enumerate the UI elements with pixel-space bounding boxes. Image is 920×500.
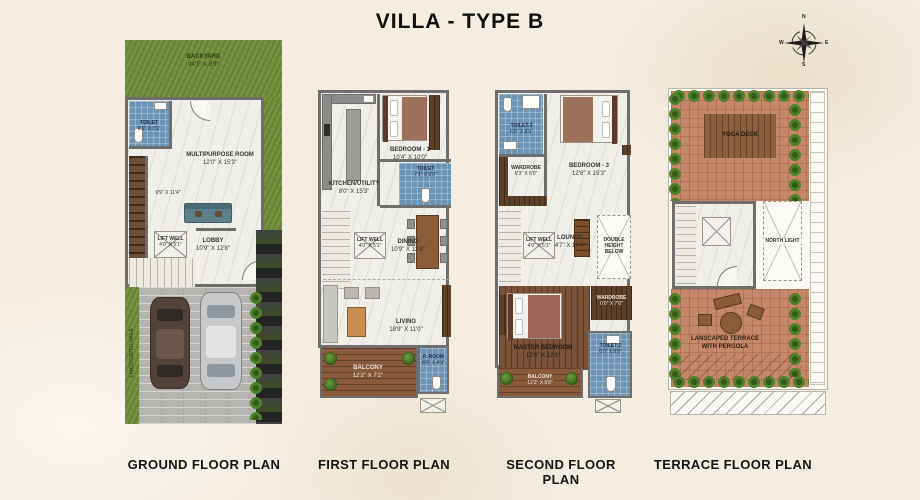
- shower-icon: [522, 95, 540, 109]
- second-building: TOILET-3 6'0" X 8'9" WARDROBE 6'3" X 6'0…: [495, 90, 630, 368]
- room-label-proom: P. ROOM 8'0" X 4'9": [418, 354, 449, 366]
- bed-pillow: [390, 121, 398, 137]
- room-dim: 10'9" X 12'4": [387, 247, 429, 255]
- car-rear-glass: [157, 365, 184, 378]
- room-label-toilet3: TOILET-3 6'0" X 8'9": [500, 123, 543, 135]
- room-dim: 7'1" X 5'0": [401, 172, 450, 178]
- zone-divider: [323, 279, 450, 280]
- room-label-balcony-first: BALCONY 12'2" X 7'2": [328, 365, 408, 380]
- bed-pillow: [602, 101, 610, 117]
- sofa-icon: [184, 203, 232, 223]
- room-name: LANDSCAPED AREA: [129, 318, 135, 388]
- room-name: DINING: [387, 239, 429, 247]
- bed-pillow: [602, 122, 610, 138]
- partition-wall: [380, 205, 451, 208]
- bed-blanket: [528, 295, 560, 338]
- villa-floorplan-sheet: VILLA - TYPE B N E S W BACKYARD 24'3" X …: [0, 0, 920, 500]
- room-name: LIVING: [378, 319, 434, 327]
- room-label-lift-first: LIFT WELL 4'0" X 5'1": [354, 237, 386, 249]
- floor-mat: [595, 399, 621, 413]
- wardrobe-strip: [429, 95, 440, 150]
- bed-headboard: [612, 96, 617, 144]
- plan-ground-floor: BACKYARD 24'3" X 8'9" TOILET 6'5" X 7'1"…: [125, 40, 282, 430]
- toilet-icon: [503, 97, 512, 112]
- room-label-bedroom1: BEDROOM - 1 10'4" X 10'0": [381, 147, 439, 162]
- terrace-stair-block: [672, 201, 756, 289]
- compass-east-label: E: [825, 40, 828, 46]
- car-windshield: [207, 305, 235, 318]
- first-building: KITCHEN/UTILITY 8'0" X 15'3" BEDROOM - 1…: [318, 90, 449, 348]
- room-dim: 6'3" X 6'0": [506, 171, 546, 177]
- room-dim: 6'5" X 7'1": [129, 126, 169, 132]
- room-dim: 4'7" X 12'4": [550, 243, 590, 251]
- room-label-multipurpose: MULTIPURPOSE ROOM 12'0" X 15'3": [176, 152, 264, 167]
- room-label-toilet2: TOILET-2 6'0" X 8'9": [590, 343, 631, 355]
- partition-wall: [196, 228, 236, 231]
- chair-icon: [440, 236, 448, 246]
- car-rear-glass: [207, 364, 235, 377]
- shrub-row-icon: [789, 102, 802, 201]
- bed-blanket: [402, 97, 427, 140]
- shrub-row-icon: [669, 91, 682, 201]
- room-label-northlight: NORTH LIGHT: [763, 238, 802, 244]
- bed-pillow: [515, 319, 523, 335]
- sofa-icon: [323, 285, 338, 343]
- bed-icon: [560, 95, 618, 143]
- room-dim: 4'0" X 5'1": [354, 243, 386, 249]
- room-name: BACKYARD: [125, 54, 282, 62]
- nightstand-icon: [622, 145, 631, 155]
- sofa-back: [185, 204, 231, 209]
- room-name: MULTIPURPOSE ROOM: [176, 152, 264, 160]
- sink-icon: [503, 141, 517, 150]
- room-label-living: LIVING 18'9" X 11'0": [378, 319, 434, 334]
- sofa-cushion: [195, 211, 202, 217]
- room-dim: 24'3" X 8'9": [125, 62, 282, 70]
- chair-icon: [440, 253, 448, 263]
- bed-icon: [382, 95, 427, 141]
- caption-terrace-floor: TERRACE FLOOR PLAN: [648, 457, 818, 472]
- room-label-bedroom3: BEDROOM - 3 12'6" X 15'3": [558, 163, 620, 178]
- car-icon: [200, 292, 242, 390]
- compass-star-icon: [779, 16, 829, 66]
- room-name: DOUBLE HEIGHT BELOW: [598, 237, 630, 255]
- compass-south-label: S: [802, 62, 805, 68]
- room-dim: 12'0" X 15'3": [176, 160, 264, 168]
- tv-unit-icon: [442, 285, 451, 337]
- floor-mat: [420, 398, 446, 413]
- room-dim: 6'0" X 8'9": [590, 349, 631, 355]
- chair-icon: [407, 253, 415, 263]
- plant-icon: [402, 352, 415, 365]
- chair-icon: [407, 219, 415, 229]
- room-label-kitchen: KITCHEN/UTILITY 8'0" X 15'3": [325, 181, 383, 196]
- room-dim: 12'2" X 7'2": [328, 373, 408, 381]
- toilet-icon: [606, 376, 616, 392]
- sink-icon: [154, 102, 167, 110]
- room-label-lobby: LOBBY 10'9" X 12'8": [183, 238, 243, 253]
- side-garden-strip: [262, 97, 282, 230]
- bed-icon: [507, 293, 562, 339]
- room-dim: 6'9" X 11'4": [148, 190, 188, 196]
- compass-icon: N E S W: [779, 16, 829, 66]
- room-label-yoga: YOGA DECK: [704, 132, 776, 140]
- room-dim: 18'9" X 11'0": [378, 327, 434, 335]
- compass-north-label: N: [802, 14, 806, 20]
- room-label-wardrobe2: WARDROBE 6'0" X 7'0": [592, 295, 631, 307]
- stairs-terrace: [676, 206, 696, 286]
- room-label-wardrobe: WARDROBE 6'3" X 6'0": [506, 165, 546, 177]
- room-label-stair-hall: 6'9" X 11'4": [148, 190, 188, 196]
- stairs-lower: [129, 258, 195, 287]
- caption-second-floor: SECOND FLOOR PLAN: [486, 457, 636, 487]
- room-dim: 6'0" X 8'9": [500, 129, 543, 135]
- stairs-second: [499, 211, 521, 289]
- bed-headboard: [508, 294, 513, 340]
- tv-unit-icon: [499, 295, 505, 335]
- bed-blanket: [563, 97, 593, 142]
- plant-icon: [324, 352, 337, 365]
- side-walkway: [810, 91, 825, 385]
- room-name: LOBBY: [183, 238, 243, 246]
- ground-building: TOILET 6'5" X 7'1" MULTIPURPOSE ROOM 12'…: [125, 97, 264, 287]
- compass-west-label: W: [779, 40, 784, 46]
- room-name: MASTER BEDROOM: [510, 345, 576, 353]
- room-label-landscaped: LANDSCAPED AREA: [129, 318, 135, 388]
- room-label-balcony-second: BALCONY 12'2" X 5'8": [498, 374, 582, 386]
- stove-icon: [323, 123, 331, 137]
- room-dim: 12'6" X 15'3": [558, 171, 620, 179]
- bed-pillow: [515, 298, 523, 314]
- room-name: BALCONY: [328, 365, 408, 373]
- car-roof: [156, 329, 185, 360]
- caption-first-floor: FIRST FLOOR PLAN: [311, 457, 457, 472]
- room-name: NORTH LIGHT: [763, 238, 802, 244]
- chair-icon: [698, 314, 712, 326]
- armchair-icon: [344, 287, 359, 299]
- room-dim: 10'4" X 10'0": [381, 155, 439, 163]
- kitchen-island: [346, 109, 361, 181]
- partition-wall: [129, 146, 172, 149]
- room-name: LOUNGE: [550, 235, 590, 243]
- room-label-terrace: LANSCAPED TERRACE WITH PERGOLA: [683, 336, 767, 351]
- plan-first-floor: KITCHEN/UTILITY 8'0" X 15'3" BEDROOM - 1…: [318, 90, 450, 415]
- car-icon: [150, 297, 190, 389]
- door-arc: [717, 266, 737, 286]
- sofa-cushion: [215, 211, 222, 217]
- room-label-master: MASTER BEDROOM 12'6" X 12'6": [510, 345, 576, 360]
- coffee-table-icon: [347, 307, 366, 337]
- room-name: BEDROOM - 1: [381, 147, 439, 155]
- room-label-backyard: BACKYARD 24'3" X 8'9": [125, 54, 282, 69]
- planter-row-icon: [250, 290, 263, 420]
- room-name: YOGA DECK: [704, 132, 776, 140]
- plan-second-floor: TOILET-3 6'0" X 8'9" WARDROBE 6'3" X 6'0…: [495, 90, 632, 415]
- bed-headboard: [383, 96, 388, 142]
- room-name: BEDROOM - 3: [558, 163, 620, 171]
- armchair-icon: [365, 287, 380, 299]
- lift-well: [702, 217, 731, 246]
- room-dim: 8'0" X 15'3": [325, 189, 383, 197]
- room-dim: 8'0" X 4'9": [418, 360, 449, 366]
- partition-wall: [544, 94, 547, 206]
- room-name: LANSCAPED TERRACE WITH PERGOLA: [683, 336, 767, 351]
- toilet-icon: [432, 376, 441, 390]
- kitchen-counter: [322, 94, 332, 190]
- partition-wall: [169, 101, 172, 147]
- door-arc: [190, 101, 210, 121]
- shrub-row-icon: [671, 89, 809, 103]
- room-dim: 10'9" X 12'8": [183, 246, 243, 254]
- round-table-icon: [720, 312, 742, 334]
- room-dim: 6'0" X 7'0": [592, 301, 631, 307]
- toilet-icon: [421, 188, 430, 203]
- room-name: KITCHEN/UTILITY: [325, 181, 383, 189]
- bed-pillow: [390, 100, 398, 116]
- wardrobe-strip: [499, 196, 547, 206]
- caption-ground-floor: GROUND FLOOR PLAN: [125, 457, 283, 472]
- car-windshield: [157, 309, 184, 322]
- room-dim: 12'6" X 12'6": [510, 353, 576, 361]
- pergola-hatch: [678, 354, 802, 380]
- room-dim: 12'2" X 5'8": [498, 380, 582, 386]
- room-label-toilet-ground: TOILET 6'5" X 7'1": [129, 120, 169, 132]
- room-label-lounge: LOUNGE 4'7" X 12'4": [550, 235, 590, 250]
- car-roof: [206, 326, 236, 359]
- room-label-doubleheight: DOUBLE HEIGHT BELOW: [598, 237, 630, 255]
- chair-icon: [440, 219, 448, 229]
- pergola-lower-hatch: [670, 391, 826, 415]
- fridge-icon: [363, 95, 374, 103]
- stairs-first: [322, 211, 350, 289]
- room-label-dining: DINING 10'9" X 12'4": [387, 239, 429, 254]
- room-label-toilet-first: TOILET 7'1" X 5'0": [401, 166, 450, 178]
- plan-terrace-floor: YOGA DECK NORTH LIGHT LANSCAPED TERRACE …: [668, 88, 832, 420]
